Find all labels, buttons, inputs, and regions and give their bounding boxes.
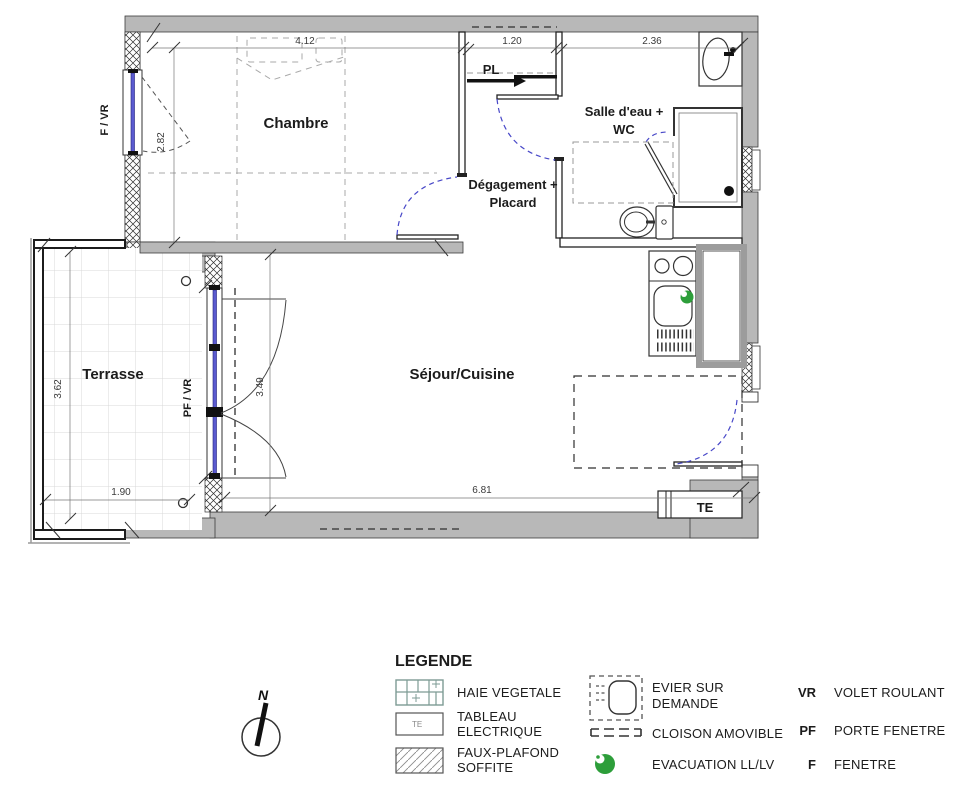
legend-faux-label-2: SOFFITE <box>457 760 513 775</box>
svg-text:TE: TE <box>412 720 422 729</box>
legend-haie-icon <box>396 680 443 705</box>
dim-chambre-depth: 2.82 <box>156 132 167 152</box>
label-salle-eau-1: Salle d'eau + <box>585 104 664 119</box>
label-salle-eau-2: WC <box>613 122 635 137</box>
legend-cloison-icon <box>591 729 641 736</box>
parapet-left <box>34 240 43 538</box>
pillow-icon <box>247 38 302 62</box>
washer-zone <box>573 142 673 203</box>
legend-evacuation-label: EVACUATION LL/LV <box>652 757 775 772</box>
legend-faux-label-1: FAUX-PLAFOND <box>457 745 559 760</box>
north-label: N <box>258 687 269 703</box>
label-degagement-1: Dégagement + <box>468 177 558 192</box>
window-right-bath <box>752 150 760 190</box>
bed-outline <box>148 36 437 242</box>
label-chambre: Chambre <box>263 115 328 132</box>
label-degagement-2: Placard <box>490 195 537 210</box>
legend-evier-icon <box>590 676 642 720</box>
legend-tableau-label-2: ELECTRIQUE <box>457 724 542 739</box>
legend-f-abbr: F <box>808 757 816 772</box>
parapet-bottom <box>34 530 125 539</box>
legend-pf-label: PORTE FENETRE <box>834 723 946 738</box>
technical-shaft <box>699 247 744 365</box>
wall-salle-eau-left <box>556 160 562 238</box>
wall-top <box>125 16 758 32</box>
dim-pl-width: 1.20 <box>502 36 522 47</box>
pillar-window-bottom <box>205 478 222 512</box>
legend: LEGENDE HAIE VEGETALE TE TABLEAU ELECTRI… <box>395 653 946 775</box>
north-compass-icon: N <box>242 687 280 756</box>
chambre-door <box>397 177 458 239</box>
salle-eau-fixtures <box>573 32 748 239</box>
wall-pl-right <box>556 32 562 96</box>
shower-door-arc <box>646 132 668 142</box>
label-pl: PL <box>483 62 500 77</box>
wall-right-window1-hatch <box>742 147 752 192</box>
label-terrasse: Terrasse <box>82 366 143 383</box>
toilet-icon <box>620 206 673 239</box>
salle-eau-door <box>497 95 558 160</box>
legend-title: LEGENDE <box>395 653 473 670</box>
pl-sliding-door <box>467 73 557 87</box>
shower <box>645 108 742 207</box>
duvet-line <box>237 56 347 80</box>
legend-tableau-label-1: TABLEAU <box>457 709 517 724</box>
label-sejour: Séjour/Cuisine <box>409 366 514 383</box>
window-chambre <box>123 69 142 155</box>
legend-evacuation-icon <box>595 754 615 774</box>
wall-cap <box>457 173 467 177</box>
legend-haie-label: HAIE VEGETALE <box>457 685 561 700</box>
porte-fenetre <box>206 285 223 479</box>
legend-vr-abbr: VR <box>798 685 817 700</box>
legend-evier-label-1: EVIER SUR <box>652 680 724 695</box>
dim-terrasse-depth: 3.62 <box>53 379 64 399</box>
legend-tableau-icon: TE <box>396 713 443 735</box>
legend-f-label: FENETRE <box>834 757 896 772</box>
wall-left-hatch-top <box>125 32 140 70</box>
wall-left-hatch-bottom <box>125 155 140 242</box>
pillar-window-top <box>205 256 222 288</box>
entry-door-jamb-top <box>742 392 758 402</box>
te-label: TE <box>697 500 714 515</box>
legend-vr-label: VOLET ROULANT <box>834 685 945 700</box>
dim-sejour-depth: 3.49 <box>255 377 266 397</box>
dim-terrasse-width: 1.90 <box>111 487 131 498</box>
legend-faux-plafond-icon <box>396 748 443 773</box>
legend-pf-abbr: PF <box>799 723 816 738</box>
dim-salle-eau-width: 2.36 <box>642 36 662 47</box>
post-circle-top <box>182 277 191 286</box>
drain-icon <box>724 186 734 196</box>
wall-cap2 <box>554 157 564 161</box>
dim-sejour-width: 6.81 <box>472 485 492 496</box>
legend-cloison-label: CLOISON AMOVIBLE <box>652 726 783 741</box>
evacuation-icon <box>681 291 694 304</box>
legend-evier-label-2: DEMANDE <box>652 696 719 711</box>
label-f-vr: F / VR <box>99 104 111 135</box>
shower-door-leaf <box>645 144 674 196</box>
wall-chambre-sejour <box>140 242 463 253</box>
dim-chambre-width: 4.12 <box>295 36 315 47</box>
wall-right-upper <box>742 32 758 147</box>
entry-door <box>674 400 742 466</box>
kitchen-fixtures: TE <box>574 247 749 518</box>
floor-plan-canvas: TE 4.12 1.20 2.36 2.82 3.49 3.62 <box>0 0 968 800</box>
window-right-sejour <box>752 346 760 389</box>
label-pf-vr: PF / VR <box>182 379 194 418</box>
soffit-zone <box>574 376 742 468</box>
pf-double-door-swing <box>221 288 286 478</box>
entry-door-jamb-bottom <box>742 465 758 477</box>
